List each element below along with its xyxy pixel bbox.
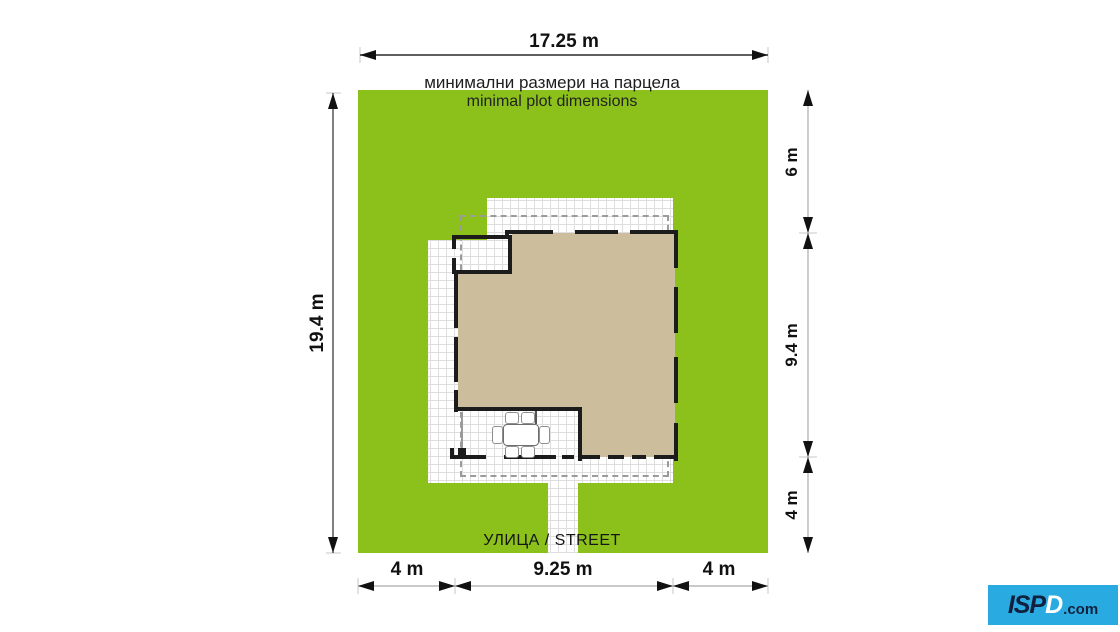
plot-title-english: minimal plot dimensions bbox=[467, 93, 638, 111]
dim-label-right-6m: 6 m bbox=[782, 147, 802, 176]
chair bbox=[505, 446, 519, 458]
wall-segment bbox=[674, 230, 678, 268]
brand-logo-suffix: .com bbox=[1063, 601, 1098, 618]
dining-table bbox=[503, 424, 539, 446]
plot-title-bulgarian: минимални размери на парцела bbox=[424, 73, 680, 93]
wall-segment bbox=[452, 235, 456, 249]
chair bbox=[521, 446, 535, 458]
chair bbox=[539, 426, 550, 444]
street-label: УЛИЦА / STREET bbox=[483, 532, 621, 550]
wall-segment bbox=[508, 235, 512, 274]
wall-segment bbox=[562, 455, 574, 459]
wall-segment bbox=[454, 337, 458, 382]
dim-label-top-width: 17.25 m bbox=[529, 31, 599, 53]
dim-label-left-height: 19.4 m bbox=[307, 293, 329, 352]
site-plan-page: { "title": { "bg": "минимални размери на… bbox=[0, 0, 1120, 632]
brand-logo-text: ISPD bbox=[1008, 591, 1062, 620]
wall-segment bbox=[454, 270, 512, 274]
wall-segment bbox=[578, 407, 582, 461]
chair bbox=[492, 426, 503, 444]
wall-segment bbox=[630, 230, 678, 234]
wall-segment bbox=[505, 230, 553, 234]
wall-segment bbox=[578, 455, 600, 459]
wall-segment bbox=[654, 455, 678, 459]
wall-segment bbox=[450, 448, 454, 459]
wall-segment bbox=[674, 357, 678, 403]
dim-label-bottom-4m-right: 4 m bbox=[703, 559, 736, 581]
dim-label-right-4m: 4 m bbox=[782, 490, 802, 519]
terrace-railing bbox=[461, 412, 463, 450]
wall-segment bbox=[632, 455, 646, 459]
plot-area bbox=[358, 90, 768, 553]
wall-segment bbox=[454, 407, 582, 411]
brand-logo[interactable]: ISPD .com bbox=[988, 585, 1118, 625]
dim-label-right-9-4m: 9.4 m bbox=[782, 323, 802, 366]
chair bbox=[521, 412, 535, 424]
railing-post bbox=[458, 448, 466, 455]
dim-label-bottom-4m-left: 4 m bbox=[391, 559, 424, 581]
wall-segment bbox=[454, 270, 458, 328]
wall-segment bbox=[674, 287, 678, 333]
wall-segment bbox=[575, 230, 618, 234]
wall-segment bbox=[608, 455, 624, 459]
wall-segment bbox=[450, 455, 486, 459]
dim-label-bottom-9-25m: 9.25 m bbox=[533, 559, 592, 581]
chair bbox=[505, 412, 519, 424]
wall-segment bbox=[452, 235, 508, 239]
terrace-divider bbox=[535, 411, 537, 424]
